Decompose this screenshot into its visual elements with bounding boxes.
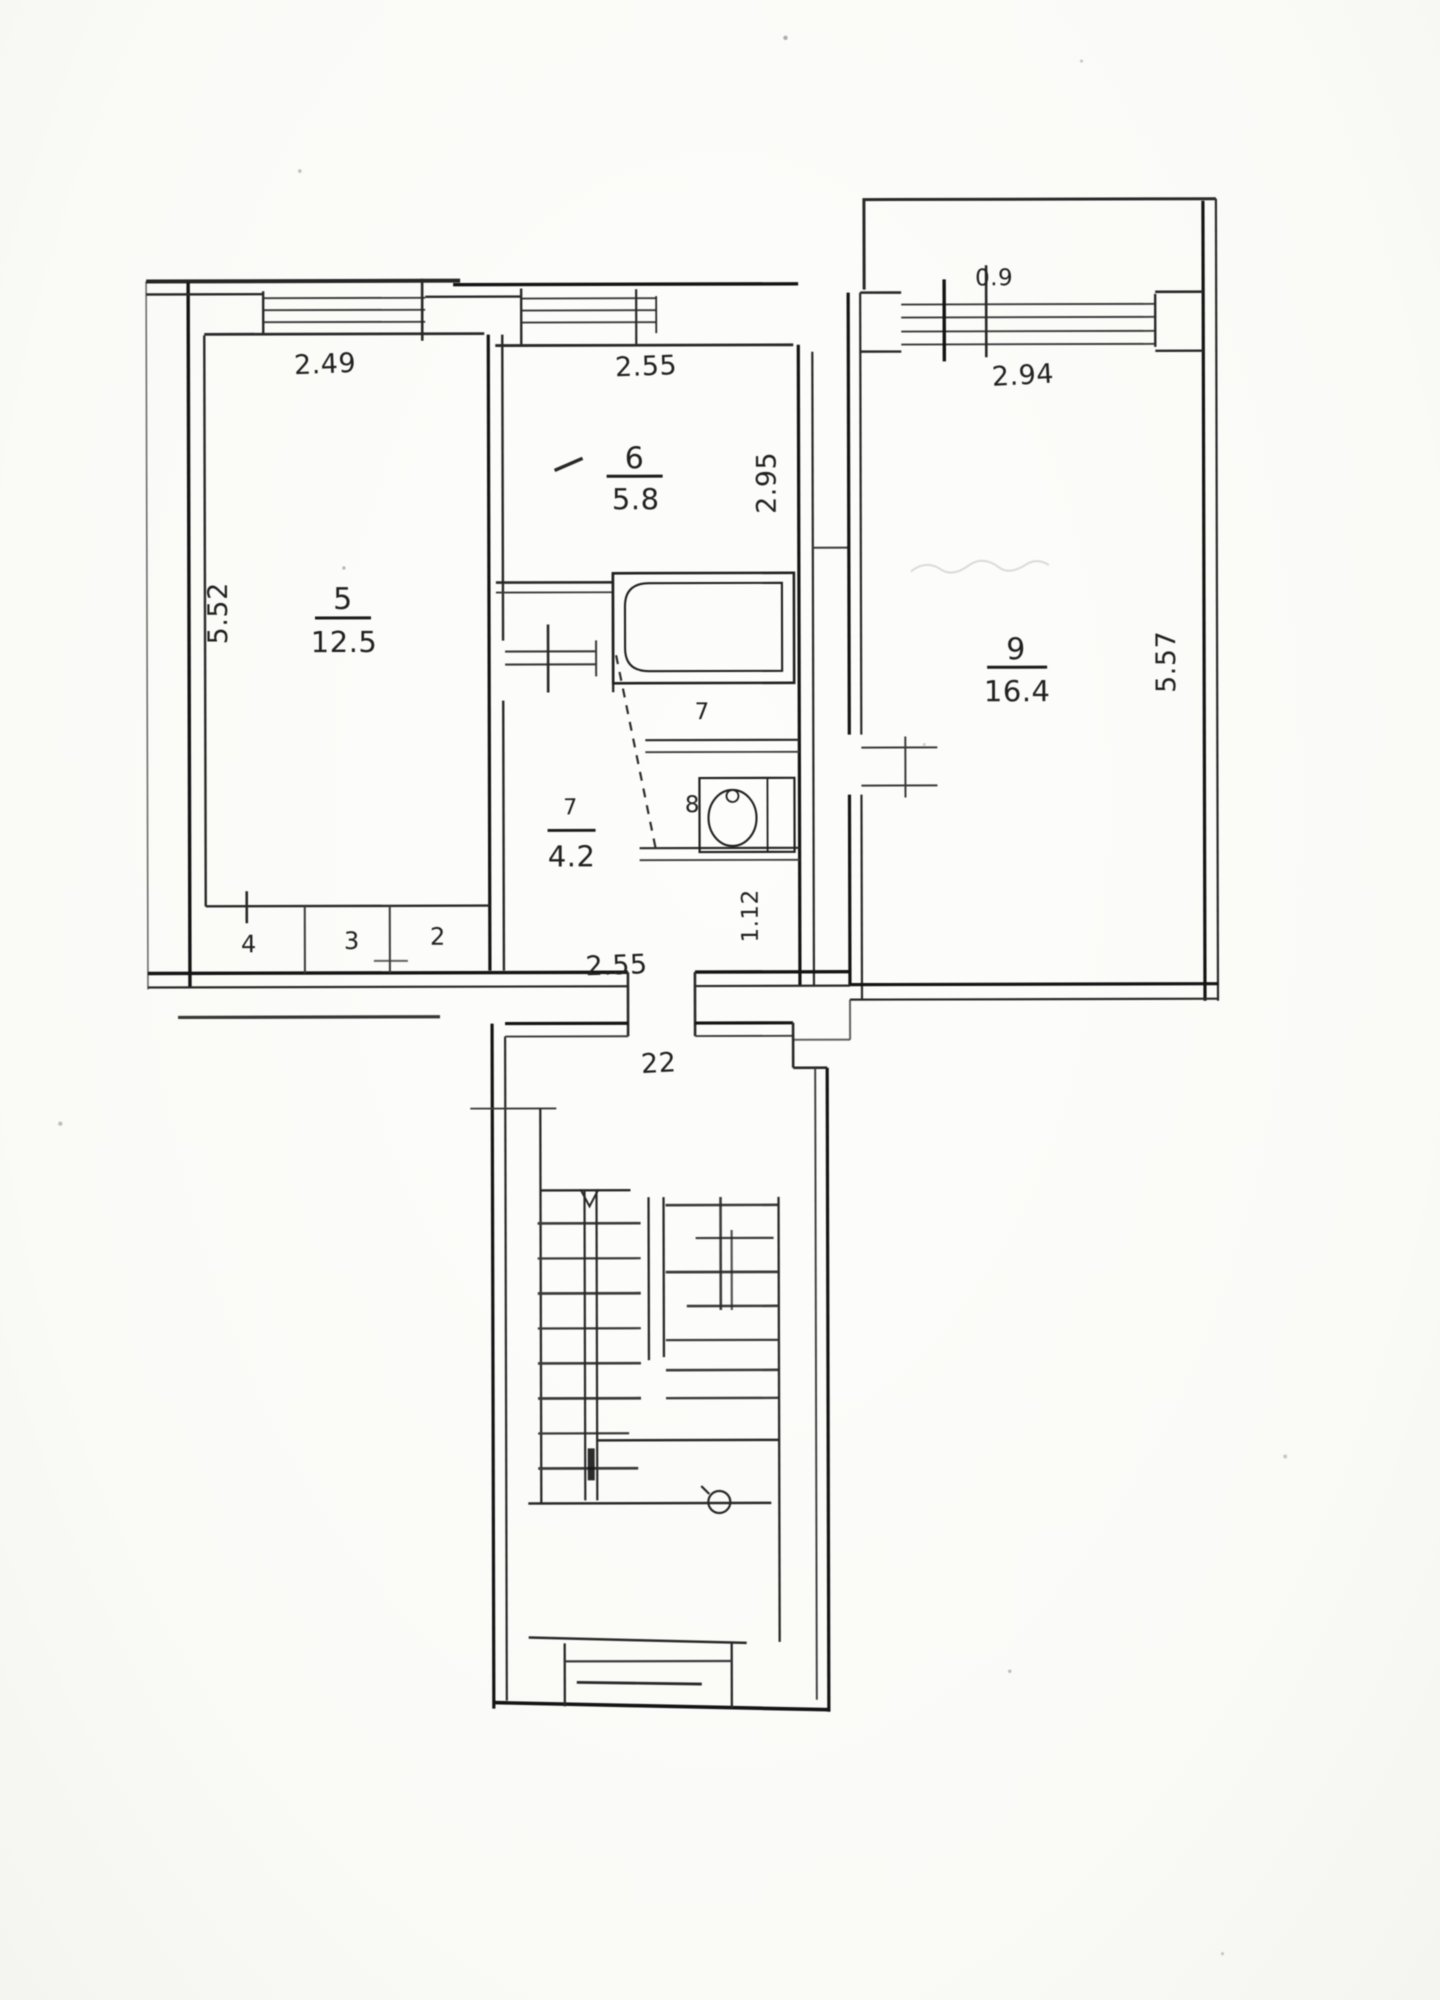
room5-room6-divider-wall: [488, 334, 597, 970]
pencil-scribble: [911, 561, 1049, 573]
stair-flight-icon: [527, 1190, 779, 1709]
dim-window-leaf: 0.9: [975, 265, 1013, 291]
room-5-area: 12.5: [311, 625, 378, 659]
floor-plan-drawing: 5 12.5 6 5.8 9 16.4 7 4.2 7 8 4 3 2: [0, 0, 1440, 2000]
dim-room6-depth: 2.95: [752, 452, 783, 514]
balcony-outline: [864, 199, 1216, 290]
closet-number: 4: [241, 930, 257, 958]
room-6-number: 6: [625, 441, 645, 476]
room-6-label: 6 5.8: [555, 441, 663, 516]
washbasin-icon: [699, 778, 794, 852]
dim-room5-width: 2.49: [293, 348, 356, 381]
bathtub-icon: [613, 573, 794, 683]
bathroom-number: 7: [695, 699, 710, 725]
dim-room9-width: 2.94: [991, 359, 1055, 393]
window-icon: [521, 288, 656, 345]
closet-number: 3: [344, 927, 360, 955]
entrance-apartment-number: 22: [640, 1047, 677, 1080]
room-9-label: 9 16.4: [984, 632, 1051, 708]
scanned-floor-plan-page: 5 12.5 6 5.8 9 16.4 7 4.2 7 8 4 3 2: [0, 0, 1440, 2000]
stairwell-walls: [470, 972, 852, 1713]
room-6-area: 5.8: [612, 482, 660, 516]
room-9-area: 16.4: [984, 674, 1051, 708]
left-block-walls: [146, 280, 800, 990]
room9-walls: [848, 199, 1218, 1002]
hall-number: 7: [563, 795, 578, 820]
hall-label: 7 4.2: [547, 795, 595, 873]
dim-room6-width: 2.55: [614, 350, 677, 383]
apartment-bottom-wall: [148, 972, 850, 1018]
scan-specks: [55, 34, 1288, 1958]
room-9-number: 9: [1006, 632, 1026, 667]
wet-zone-walls: [496, 573, 800, 861]
room-5-label: 5 12.5: [311, 582, 378, 659]
dim-room5-depth: 5.52: [203, 582, 234, 644]
window-icon: [901, 265, 1156, 362]
dim-toilet-depth: 1.12: [738, 889, 764, 942]
middle-block-right-wall: [798, 345, 850, 986]
closet-number: 2: [430, 923, 446, 951]
dim-room9-depth: 5.57: [1151, 631, 1182, 693]
toilet-number: 8: [685, 792, 700, 818]
window-icon: [263, 279, 425, 341]
hall-area: 4.2: [548, 839, 596, 873]
dim-hall-width: 2.55: [585, 949, 648, 982]
room-5-number: 5: [333, 582, 353, 617]
tick-mark: [555, 458, 583, 470]
